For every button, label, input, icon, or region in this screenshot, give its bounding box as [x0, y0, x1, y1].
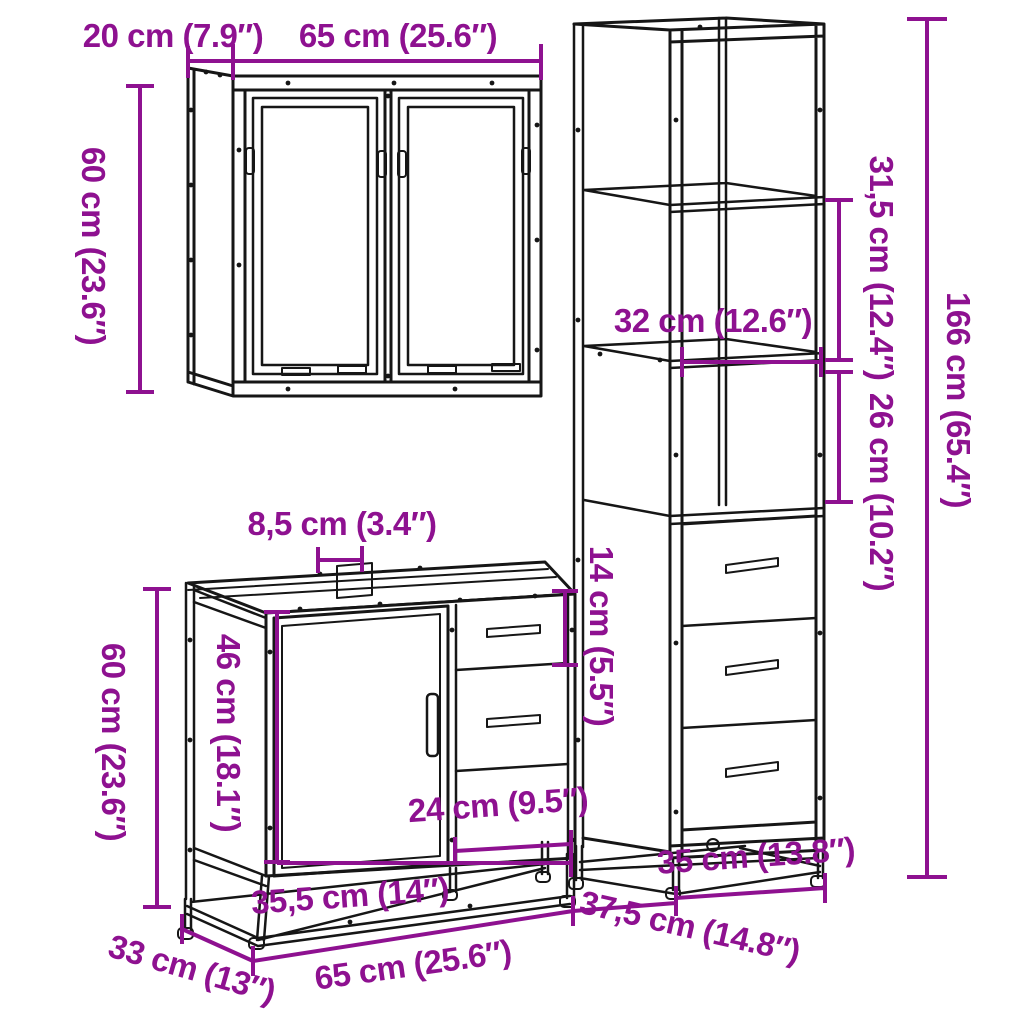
dim-label-tall-lower-shelf: 26 cm (10.2″)	[862, 393, 900, 591]
screw-dot	[218, 73, 223, 78]
dim-line-tall-upper-shelf	[825, 200, 853, 360]
screw-dot	[468, 904, 473, 909]
screw-dot	[188, 848, 193, 853]
screw-dot	[818, 796, 823, 801]
screw-dot	[576, 318, 581, 323]
screw-dot	[188, 738, 193, 743]
dim-line-tall-lower-shelf	[825, 372, 853, 502]
screw-dot	[237, 148, 242, 153]
dim-label-mirror-width: 65 cm (25.6″)	[299, 17, 497, 55]
dim-label-vanity-door-height: 46 cm (18.1″)	[209, 634, 247, 832]
dim-label-tall-shelf-width: 32 cm (12.6″)	[614, 302, 812, 340]
vent-slot	[428, 366, 456, 373]
tall-cabinet-shelves	[584, 183, 824, 524]
dim-line-tall-shelf-width	[682, 347, 821, 377]
screw-dot	[453, 387, 458, 392]
mirror-door-right	[399, 98, 523, 374]
vanity-front-face	[266, 594, 575, 876]
screw-dot	[418, 566, 423, 571]
screw-dot	[818, 631, 823, 636]
screw-dot	[392, 81, 397, 86]
dim-line-mirror-height	[126, 86, 154, 392]
screw-dot	[204, 70, 209, 75]
screw-dot	[674, 118, 679, 123]
screw-dot	[268, 650, 273, 655]
dim-label-mirror-depth: 20 cm (7.9″)	[83, 17, 263, 55]
screw-dot	[189, 333, 194, 338]
screw-dot	[658, 358, 663, 363]
screw-dot	[576, 128, 581, 133]
screw-dot	[674, 810, 679, 815]
dim-label-vanity-height: 60 cm (23.6″)	[94, 643, 132, 841]
screw-dot	[598, 352, 603, 357]
screw-dot	[189, 258, 194, 263]
screw-dot	[189, 108, 194, 113]
screw-dot	[576, 558, 581, 563]
screw-dot	[386, 94, 391, 99]
screw-dot	[378, 602, 383, 607]
screw-dot	[348, 920, 353, 925]
screw-dot	[674, 641, 679, 646]
mirror-door-left	[253, 98, 377, 374]
dim-label-tall-height: 166 cm (65.4″)	[939, 292, 977, 508]
mirror-cabinet	[188, 68, 541, 396]
screw-dot	[535, 123, 540, 128]
screw-dot	[490, 81, 495, 86]
screw-dot	[576, 738, 581, 743]
dimension-diagram: 20 cm (7.9″) 65 cm (25.6″) 60 cm (23.6″)…	[0, 0, 1024, 1024]
screw-dot	[698, 25, 703, 30]
tall-cabinet	[569, 18, 825, 899]
vent-slot	[338, 366, 366, 373]
screw-dot	[533, 594, 538, 599]
screw-dot	[298, 607, 303, 612]
dim-label-vanity-drawer-height: 14 cm (5.5″)	[582, 546, 620, 726]
screw-dot	[674, 453, 679, 458]
screw-dot	[237, 263, 242, 268]
dim-label-mirror-height: 60 cm (23.6″)	[74, 147, 112, 345]
screw-dot	[570, 628, 575, 633]
screw-dot	[535, 238, 540, 243]
screw-dot	[189, 183, 194, 188]
dim-label-vanity-gap: 8,5 cm (3.4″)	[247, 505, 436, 543]
mirror-cabinet-carcass	[188, 68, 541, 396]
screw-dot	[450, 628, 455, 633]
mirror-door-handles	[246, 148, 530, 177]
screw-dot	[535, 348, 540, 353]
dim-label-tall-upper-shelf: 31,5 cm (12.4″)	[862, 156, 900, 381]
screw-dot	[188, 638, 193, 643]
screw-dot	[286, 81, 291, 86]
screw-dot	[386, 374, 391, 379]
screw-dot	[818, 453, 823, 458]
dim-line-vanity-height	[143, 589, 171, 907]
screw-dot	[458, 598, 463, 603]
screw-dot	[268, 826, 273, 831]
dim-line-vanity-gap	[318, 546, 362, 573]
tall-cabinet-drawer-stack	[682, 516, 816, 830]
screw-dot	[818, 108, 823, 113]
screw-dot	[286, 387, 291, 392]
